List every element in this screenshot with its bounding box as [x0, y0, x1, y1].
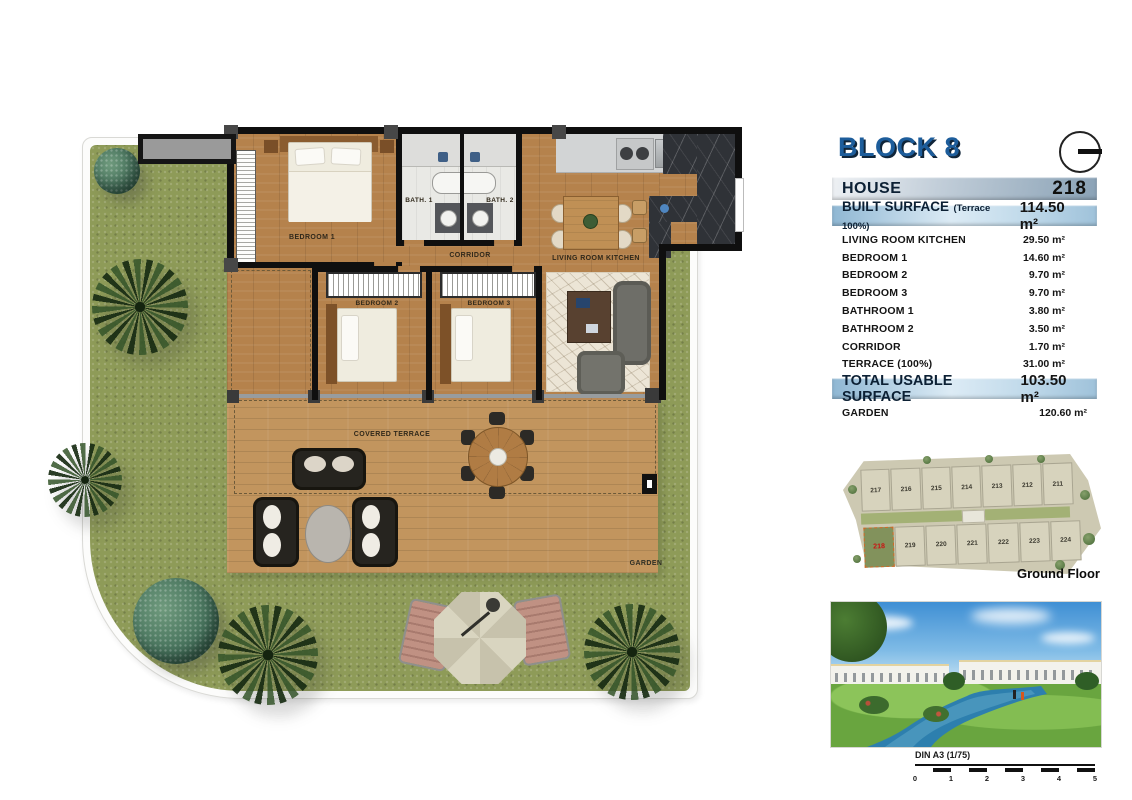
kitchen-island — [649, 196, 697, 222]
house-label: HOUSE — [842, 180, 901, 198]
lounger-cushion — [362, 505, 380, 529]
row-value: 9.70 m² — [1029, 287, 1065, 299]
wall — [659, 244, 666, 400]
palm-tree-icon — [92, 259, 188, 355]
living-label: LIVING ROOM KITCHEN — [526, 255, 666, 262]
wall — [659, 244, 742, 251]
tree-icon — [1083, 533, 1095, 545]
unit-number: 220 — [935, 541, 946, 548]
unit-cell: 224 — [1050, 520, 1081, 561]
project-photo — [830, 601, 1102, 748]
lounger-cushion — [263, 505, 281, 529]
row-value: 1.70 m² — [1029, 341, 1065, 353]
window-shutter — [236, 150, 256, 264]
unit-number: 213 — [992, 482, 1003, 489]
unit-cell: 212 — [1012, 463, 1043, 506]
photo-person — [1013, 690, 1016, 699]
door-opening — [512, 266, 534, 272]
door-opening — [404, 240, 424, 246]
unit-cell: 215 — [921, 467, 952, 510]
unit-number: 223 — [1029, 538, 1040, 545]
terrace-chair — [489, 412, 505, 425]
unit-cell: 222 — [987, 522, 1018, 563]
table-centerpiece — [583, 214, 598, 229]
tree-icon — [853, 555, 861, 563]
single-bed — [451, 308, 511, 382]
row-label: BEDROOM 3 — [842, 287, 907, 299]
scale-tick: 4 — [1057, 774, 1061, 783]
unit-number: 211 — [1052, 480, 1063, 487]
orientation-dash — [1078, 149, 1102, 154]
corridor-label: CORRIDOR — [424, 252, 516, 259]
site-plan: 217 216 215 214 213 212 211 218 219 220 … — [843, 454, 1101, 574]
vanity-unit — [435, 203, 461, 233]
total-value: 103.50 m² — [1021, 372, 1087, 406]
block-title: BLOCK 8 — [838, 132, 960, 163]
built-surface-label: BUILT SURFACE — [842, 199, 949, 214]
photo-person — [1021, 692, 1024, 700]
built-surface-value: 114.50 m² — [1020, 199, 1087, 233]
unit-cell: 214 — [951, 466, 982, 509]
headboard — [440, 304, 451, 384]
table-decor — [586, 324, 598, 333]
sofa-cushion — [332, 456, 354, 472]
scale-tick: 1 — [949, 774, 953, 783]
armchair — [577, 351, 625, 395]
photo-bush-flowers — [923, 706, 949, 722]
palm-tree-icon — [218, 605, 318, 705]
sliding-glass-doors — [227, 394, 659, 398]
surface-row: BATHROOM 23.50 m² — [832, 320, 1077, 338]
site-plan-road-gap — [961, 510, 984, 524]
unit-cell: 216 — [891, 468, 922, 511]
scale-ticks: 0 1 2 3 4 5 — [915, 774, 1095, 784]
palm-tree-icon — [584, 604, 680, 700]
duvet — [289, 171, 371, 222]
wall — [516, 127, 522, 246]
sink-icon — [472, 210, 489, 227]
covered-terrace-label: COVERED TERRACE — [322, 431, 462, 438]
unit-cell: 211 — [1042, 462, 1073, 505]
orientation-icon — [1059, 131, 1101, 173]
garden-row-value: 120.60 m² — [1039, 407, 1087, 419]
sink-icon — [440, 210, 457, 227]
coffee-table — [567, 291, 611, 343]
built-surface-bar: BUILT SURFACE (Terrace 100%) 114.50 m² — [832, 205, 1097, 226]
row-value: 31.00 m² — [1023, 358, 1065, 370]
unit-number: 222 — [998, 539, 1009, 546]
surface-row: CORRIDOR1.70 m² — [832, 338, 1077, 356]
cooktop — [616, 138, 654, 170]
unit-cell: 217 — [860, 469, 891, 512]
site-plan-row-bottom: 218 219 220 221 222 223 224 — [863, 520, 1081, 567]
wall — [396, 127, 402, 246]
bedroom2-label: BEDROOM 2 — [322, 300, 432, 307]
bath1-label: BATH. 1 — [397, 197, 441, 204]
row-value: 14.60 m² — [1023, 252, 1065, 264]
unit-cell: 223 — [1018, 521, 1049, 562]
row-label: BEDROOM 2 — [842, 269, 907, 281]
tree-icon — [1037, 455, 1045, 463]
pillow — [331, 147, 362, 166]
scale-tick: 0 — [913, 774, 917, 783]
lounger-cushion — [362, 533, 380, 557]
burner-icon — [636, 147, 649, 160]
total-label: TOTAL USABLE SURFACE — [842, 373, 1021, 405]
scale-tick: 5 — [1093, 774, 1097, 783]
row-label: BATHROOM 1 — [842, 305, 914, 317]
scale-segment — [1041, 768, 1059, 772]
bush-icon — [133, 578, 219, 664]
wall-post — [224, 258, 238, 272]
bar-stool — [632, 228, 647, 243]
row-value: 9.70 m² — [1029, 269, 1065, 281]
bathtub — [432, 172, 496, 194]
open-porch-outline — [231, 270, 311, 396]
outdoor-sofa — [292, 448, 366, 490]
nightstand — [264, 140, 278, 153]
unit-number: 221 — [966, 540, 977, 547]
row-label: BEDROOM 1 — [842, 252, 907, 264]
pillow — [341, 315, 359, 361]
vanity-unit — [467, 203, 493, 233]
shower — [402, 134, 516, 167]
row-value: 3.80 m² — [1029, 305, 1065, 317]
row-label: BATHROOM 2 — [842, 323, 914, 335]
sofa-cushion — [304, 456, 326, 472]
outdoor-lounger — [352, 497, 398, 567]
unit-cell-highlighted: 218 — [863, 526, 894, 567]
shower-faucet-icon — [438, 152, 448, 162]
table-decor — [576, 298, 590, 308]
terrace-table-center — [489, 448, 507, 466]
wall — [426, 266, 432, 400]
unit-number: 215 — [931, 484, 942, 491]
bar-stool — [632, 200, 647, 215]
socket-inner — [647, 480, 652, 488]
ground-floor-label: Ground Floor — [988, 566, 1100, 581]
floor-plan: COVERED TERRACE GARDEN — [0, 0, 800, 800]
total-surface-bar: TOTAL USABLE SURFACE 103.50 m² — [832, 378, 1097, 399]
scale-segment — [1077, 768, 1095, 772]
brochure-page: { "panel": { "block_title": "BLOCK 8", "… — [0, 0, 1132, 800]
outdoor-side-table — [305, 505, 351, 563]
unit-number: 218 — [873, 543, 885, 550]
unit-cell: 213 — [982, 464, 1013, 507]
scale-segment — [1005, 768, 1023, 772]
surface-rows: LIVING ROOM KITCHEN29.50 m² BEDROOM 114.… — [832, 231, 1077, 373]
unit-number: 212 — [1022, 481, 1033, 488]
scale-bar — [915, 764, 1095, 774]
kitchen-marble-column — [697, 134, 735, 244]
house-number: 218 — [1052, 178, 1087, 200]
nightstand — [380, 140, 394, 153]
wardrobe — [440, 272, 536, 298]
pillow — [455, 315, 473, 361]
wall — [312, 266, 318, 400]
photo-river — [831, 602, 1101, 747]
entrance-door — [735, 178, 744, 232]
wall-post — [552, 125, 566, 139]
parasol-base — [486, 598, 500, 612]
column-post — [227, 390, 239, 403]
wardrobe — [326, 272, 422, 298]
scale-tick: 2 — [985, 774, 989, 783]
burner-icon — [620, 147, 633, 160]
info-panel: BLOCK 8 HOUSE 218 BUILT SURFACE (Terrace… — [830, 128, 1100, 428]
terrace-chair — [489, 486, 505, 499]
row-value: 29.50 m² — [1023, 234, 1065, 246]
island-sink-icon — [660, 204, 669, 213]
unit-number: 216 — [901, 485, 912, 492]
door-opening — [494, 240, 514, 246]
surface-row: BEDROOM 39.70 m² — [832, 284, 1077, 302]
wall — [227, 127, 742, 134]
bedroom1-label: BEDROOM 1 — [257, 234, 367, 241]
row-label: LIVING ROOM KITCHEN — [842, 234, 966, 246]
scale-tick: 3 — [1021, 774, 1025, 783]
surface-row: BEDROOM 29.70 m² — [832, 267, 1077, 285]
single-bed — [337, 308, 397, 382]
boundary-planter — [138, 134, 236, 164]
row-value: 3.50 m² — [1029, 323, 1065, 335]
unit-number: 217 — [870, 486, 881, 493]
scale-segment — [933, 768, 951, 772]
unit-number: 214 — [961, 483, 972, 490]
headboard — [326, 304, 337, 384]
garden-row-label: GARDEN — [842, 407, 889, 419]
site-plan-row-top: 217 216 215 214 213 212 211 — [860, 462, 1073, 511]
surface-row: LIVING ROOM KITCHEN29.50 m² — [832, 231, 1077, 249]
wall-post — [384, 125, 398, 139]
unit-number: 219 — [904, 542, 915, 549]
surface-row: BATHROOM 13.80 m² — [832, 302, 1077, 320]
electrical-socket — [642, 474, 657, 494]
unit-cell: 219 — [894, 525, 925, 566]
surface-row: BEDROOM 114.60 m² — [832, 249, 1077, 267]
double-bed — [288, 142, 372, 222]
garden-label: GARDEN — [616, 560, 676, 567]
unit-cell: 221 — [956, 523, 987, 564]
row-label: CORRIDOR — [842, 341, 901, 353]
lounger-cushion — [263, 533, 281, 557]
garden-row: GARDEN 120.60 m² — [832, 404, 1099, 422]
bedroom3-label: BEDROOM 3 — [434, 300, 544, 307]
wall — [536, 266, 542, 400]
bush-icon — [94, 148, 140, 194]
pillow — [294, 147, 325, 166]
wall — [460, 127, 464, 240]
scale-label: DIN A3 (1/75) — [915, 750, 970, 760]
bath2-label: BATH. 2 — [478, 197, 522, 204]
photo-bush-flowers — [859, 696, 889, 714]
scale-segment — [969, 768, 987, 772]
palm-tree-icon — [48, 443, 122, 517]
unit-cell: 220 — [925, 524, 956, 565]
outdoor-lounger — [253, 497, 299, 567]
row-label: TERRACE (100%) — [842, 358, 932, 370]
door-opening — [398, 266, 420, 272]
shower-faucet-icon — [470, 152, 480, 162]
unit-number: 224 — [1060, 536, 1071, 543]
built-surface-text: BUILT SURFACE (Terrace 100%) — [842, 198, 1020, 234]
